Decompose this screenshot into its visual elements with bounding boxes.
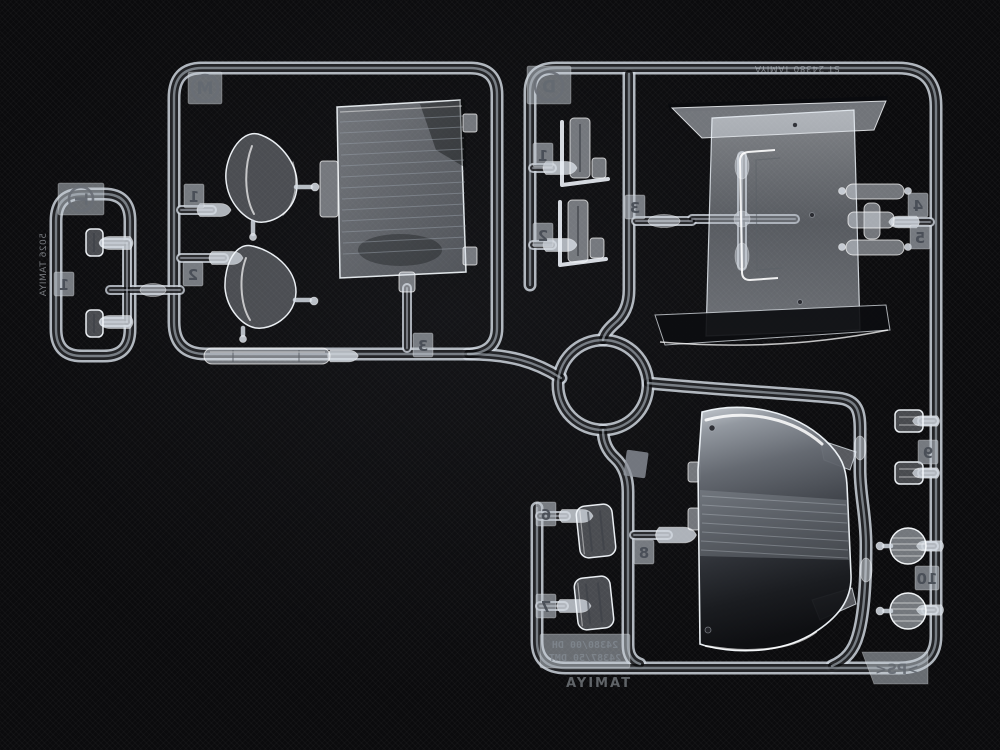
- badge-letter-m: M: [197, 79, 214, 99]
- lens-part-7: [573, 575, 614, 630]
- part-tag-b-9: 9: [918, 440, 938, 464]
- svg-text:1: 1: [538, 147, 548, 165]
- bottom-wing-dark: [655, 305, 890, 345]
- badge-small-sprue: T: [58, 183, 104, 215]
- sprue-d: D ST 24380 TAMIYA: [527, 63, 930, 345]
- louver-left-flap: [320, 161, 338, 217]
- svg-text:2: 2: [188, 266, 198, 284]
- sprue-drawing: T 5026 TAMIYA 1 M: [0, 0, 1000, 750]
- part-tag-m-2: 2: [183, 262, 203, 286]
- ejector-tab: [623, 450, 648, 479]
- part-tag-r-1: 1: [533, 143, 553, 167]
- part-tag-b-10: 10: [915, 566, 939, 590]
- badge-letter-small: T: [70, 193, 90, 205]
- round-lens-10a: [876, 528, 926, 564]
- svg-text:6: 6: [541, 506, 551, 524]
- svg-text:1: 1: [59, 276, 69, 294]
- teardrop-lens-2: [225, 246, 296, 329]
- svg-text:3: 3: [630, 199, 640, 217]
- material-mark-text: >PS<: [875, 662, 919, 678]
- svg-text:10: 10: [917, 570, 938, 588]
- svg-text:9: 9: [923, 444, 933, 462]
- part-tag-r-3: 3: [625, 195, 645, 219]
- badge-d-sprue: D: [527, 66, 571, 104]
- part-tag-b-8: 8: [634, 540, 654, 564]
- louver-window-part: [320, 100, 477, 292]
- sprue-small: T 5026 TAMIYA 1: [39, 183, 104, 337]
- sprue-m: M: [183, 72, 477, 364]
- bracket-part-1: [562, 118, 608, 185]
- svg-text:2: 2: [538, 227, 548, 245]
- brand-molding: TAMIYA: [564, 676, 630, 691]
- windshield-part: [688, 407, 856, 650]
- part-tag-r-4: 4: [908, 193, 928, 217]
- part-tag-r-2: 2: [533, 223, 553, 247]
- part-tag-m-1: 1: [184, 184, 204, 208]
- sprue-photo: T 5026 TAMIYA 1 M: [0, 0, 1000, 750]
- badge-letter-d: D: [542, 75, 556, 95]
- molded-side-text: 5026 TAMIYA: [39, 233, 49, 297]
- panel-body: [706, 110, 860, 336]
- svg-text:4: 4: [913, 197, 923, 215]
- molded-top-frame-text: ST 24380 TAMIYA: [754, 63, 840, 73]
- lens-part-6: [575, 503, 616, 558]
- material-mark: >PS<: [862, 652, 928, 684]
- svg-text:7: 7: [541, 598, 551, 616]
- part-tag-b-7: 7: [536, 594, 556, 618]
- svg-text:8: 8: [639, 544, 649, 562]
- round-lens-10b: [876, 593, 926, 629]
- svg-text:1: 1: [189, 188, 199, 206]
- strip-lens-part: [204, 348, 330, 364]
- sprue-bottom: 6 7 8 9 10 24380/00 DH 24387/50 DMT TAMI…: [536, 407, 939, 691]
- svg-text:5: 5: [915, 229, 925, 247]
- louver-bottom-stem: [399, 272, 415, 292]
- part-tag-m-3: 3: [413, 333, 433, 357]
- bracket-part-2: [560, 200, 606, 265]
- mold-number-panel: 24380/00 DH 24387/50 DMT: [540, 634, 630, 668]
- mold-number-line1: 24380/00 DH: [552, 640, 618, 651]
- louver-right-tab-bottom: [463, 247, 477, 265]
- svg-text:3: 3: [418, 337, 428, 355]
- lens-part-9a: [895, 410, 923, 432]
- mold-number-line2: 24387/50 DMT: [549, 653, 621, 664]
- part-tag-small-1: 1: [54, 272, 74, 296]
- badge-m-sprue: M: [188, 72, 222, 104]
- part-tag-b-6: 6: [536, 502, 556, 526]
- part-tag-r-5: 5: [910, 225, 930, 249]
- louver-right-tab-top: [463, 114, 477, 132]
- teardrop-lens-1: [226, 134, 297, 223]
- lens-part-9b: [895, 462, 923, 484]
